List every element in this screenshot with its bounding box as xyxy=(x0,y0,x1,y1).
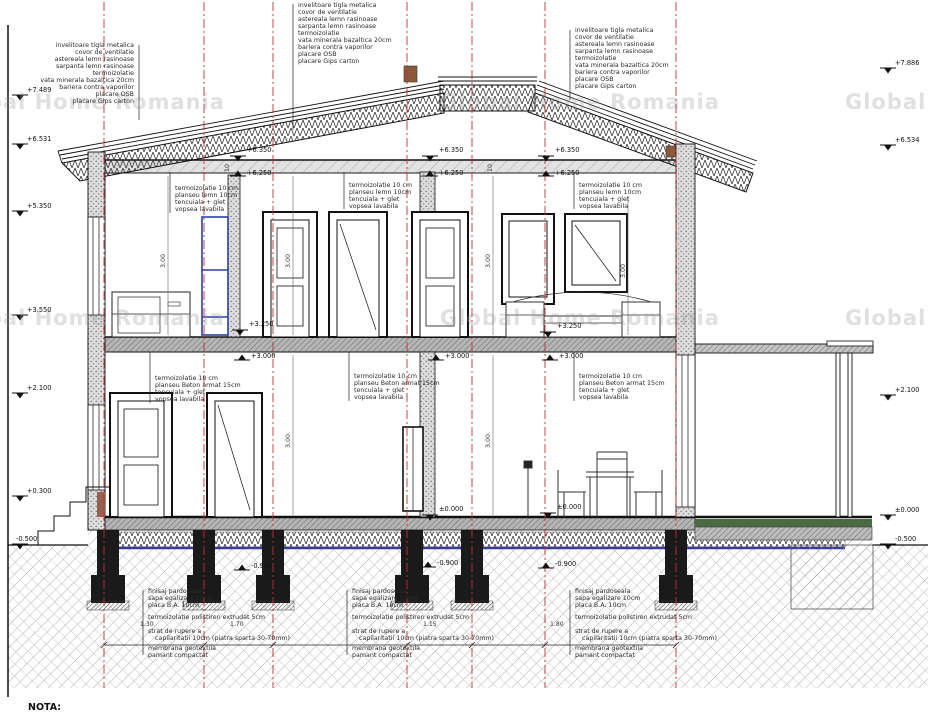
annotation-line: invelitoare tigla metalica xyxy=(575,27,669,34)
annotation-line: termoizolatie 10 cm xyxy=(354,373,440,380)
foundation-layers-right: finisaj pardosealasapa egalizare 10cmpla… xyxy=(575,588,717,659)
elevation-label: +3.000 xyxy=(559,352,583,360)
first-floor-slab xyxy=(88,337,695,352)
elevation-label: +6.350 xyxy=(555,146,579,154)
elevation-label: +3.000 xyxy=(251,352,275,360)
annotation-line: sapa egalizare 10cm xyxy=(575,595,717,602)
elevation-label: +6.250 xyxy=(439,169,463,177)
annotation-line: placa B.A. 10cm xyxy=(148,602,290,609)
dim-room-height: 3.00 xyxy=(620,264,627,278)
dim-room-height: 3.00 xyxy=(160,254,167,268)
porch-canopy xyxy=(695,341,873,517)
dim-room-height: 3.00 xyxy=(485,254,492,268)
slab-layers-left: termoizolatie 10 cmplanseu Beton armat 1… xyxy=(155,375,241,403)
annotation-line: invelitoare tigla metalica xyxy=(14,42,134,49)
annotation-line: vopsea lavabila xyxy=(579,394,665,401)
elevation-label: ±0.000 xyxy=(439,505,463,513)
ridge-beam xyxy=(404,66,417,82)
annotation-line: covor de ventilatie xyxy=(14,49,134,56)
annotation-line: capilaritatii 10cm (piatra sparta 30-70m… xyxy=(148,635,290,642)
annotation-line: planseu lemn 10cm xyxy=(349,189,412,196)
dim-foundation-segment: 1.70 xyxy=(230,621,244,628)
attic-floor-layers-right: termoizolatie 10 cmplanseu lemn 10cmtenc… xyxy=(579,182,642,210)
elevation-label: +6.531 xyxy=(27,135,51,143)
annotation-line: pamant compactat xyxy=(148,652,290,659)
annotation-line: termoizolatie polistiren extrudat 5cm xyxy=(575,614,717,621)
elevation-label: -0.500 xyxy=(16,535,37,543)
watermark: Global Home Romania xyxy=(440,90,720,114)
right-wall-door xyxy=(676,355,695,507)
annotation-line: covor de ventilatie xyxy=(575,34,669,41)
foundation-layers-left: finisaj pardosealasapa egalizare 10cmpla… xyxy=(148,588,290,659)
annotation-line: vata minerala bazaltica 20cm xyxy=(575,62,669,69)
elevation-label: +2.100 xyxy=(895,386,919,394)
attic-floor xyxy=(105,160,695,173)
elevation-label: ±0.000 xyxy=(895,506,919,514)
annotation-line: vopsea lavabila xyxy=(354,394,440,401)
elevation-label: +7.886 xyxy=(895,59,919,67)
annotation-line: planseu lemn 10cm xyxy=(175,192,238,199)
elevation-label: +3.000 xyxy=(445,352,469,360)
elevation-label: +3.250 xyxy=(249,320,273,328)
elevation-label: +6.534 xyxy=(895,136,919,144)
annotation-line: placa B.A. 10cm xyxy=(352,602,494,609)
annotation-line: sarpanta lemn rasinoase xyxy=(575,48,669,55)
annotation-line: strat de rupere a xyxy=(148,628,290,635)
dim-foundation-segment: 1.80 xyxy=(550,621,564,628)
dim-slab-thickness: 10 xyxy=(224,164,231,172)
annotation-line: tencuiala + glet xyxy=(354,387,440,394)
ground-floor-openings xyxy=(110,393,423,517)
annotation-line: planseu Beton armat 15cm xyxy=(579,380,665,387)
elevation-label: -0.900 xyxy=(251,562,272,570)
annotation-line: membrana geotextila xyxy=(148,645,290,652)
annotation-line: sarpanta lemn rasinoase xyxy=(14,63,134,70)
annotation-line: sapa egalizare 10cm xyxy=(148,595,290,602)
annotation-line: vopsea lavabila xyxy=(155,396,241,403)
annotation-line: finisaj pardoseala xyxy=(575,588,717,595)
annotation-line: tencuiala + glet xyxy=(175,199,238,206)
dim-foundation-segment: 1.30 xyxy=(140,621,154,628)
annotation-line: termoizolatie 10 cm xyxy=(175,185,238,192)
elevation-label: +3.250 xyxy=(557,322,581,330)
annotation-line: membrana geotextila xyxy=(352,645,494,652)
porch-column xyxy=(848,353,852,517)
annotation-line: sapa egalizare 10cm xyxy=(352,595,494,602)
annotation-line: bariera contra vaporilor xyxy=(575,69,669,76)
annotation-line: finisaj pardoseala xyxy=(352,588,494,595)
terrace-finish xyxy=(695,519,872,527)
annotation-line: pamant compactat xyxy=(575,652,717,659)
annotation-line: termoizolatie 10 cm xyxy=(349,182,412,189)
annotation-line: termoizolatie polistiren extrudat 5cm xyxy=(148,614,290,621)
annotation-line: covor de ventilatie xyxy=(298,9,392,16)
dim-room-height: 3.00 xyxy=(285,254,292,268)
annotation-line: termoizolatie 10 cm xyxy=(579,182,642,189)
annotation-line: termoizolatie xyxy=(298,30,392,37)
annotation-line: pamant compactat xyxy=(352,652,494,659)
annotation-line: termoizolatie xyxy=(14,70,134,77)
annotation-line: tencuiala + glet xyxy=(155,389,241,396)
elevation-label: +6.250 xyxy=(555,169,579,177)
annotation-line: placare OSB xyxy=(575,76,669,83)
annotation-line: capilaritatii 10cm (piatra sparta 30-70m… xyxy=(575,635,717,642)
annotation-line: planseu lemn 10cm xyxy=(579,189,642,196)
annotation-line: tencuiala + glet xyxy=(349,196,412,203)
annotation-line: placare OSB xyxy=(298,51,392,58)
roof-layers-right: invelitoare tigla metalicacovor de venti… xyxy=(575,27,669,90)
annotation-line: bariera contra vaporilor xyxy=(298,44,392,51)
left-wall-window-lower xyxy=(88,405,105,490)
annotation-line: termoizolatie xyxy=(575,55,669,62)
annotation-line: astereala lemn rasinoase xyxy=(575,41,669,48)
annotation-line: vata minerala bazaltica 20cm xyxy=(298,37,392,44)
elevation-label: +6.350 xyxy=(439,146,463,154)
annotation-line: capilaritatii 10cm (piatra sparta 30-70m… xyxy=(352,635,494,642)
elevation-label: +5.350 xyxy=(27,202,51,210)
drawing-canvas: Global Home Romania Global Home Romania … xyxy=(0,0,935,720)
annotation-line: termoizolatie polistiren extrudat 5cm xyxy=(352,614,494,621)
annotation-line: sarpanta lemn rasinoase xyxy=(298,23,392,30)
dim-foundation-segment: 1.15 xyxy=(423,621,437,628)
elevation-label: ±0.000 xyxy=(557,503,581,511)
watermark: Global Home Romania xyxy=(845,90,935,114)
elevation-label: -0.900 xyxy=(437,559,458,567)
dim-slab-thickness: 10 xyxy=(487,164,494,172)
slab-layers-middle: termoizolatie 10 cmplanseu Beton armat 1… xyxy=(354,373,440,401)
annotation-line: astereala lemn rasinoase xyxy=(14,56,134,63)
attic-floor-layers-middle: termoizolatie 10 cmplanseu lemn 10cmtenc… xyxy=(349,182,412,210)
elevation-label: +0.300 xyxy=(27,487,51,495)
annotation-line: placare Gips carton xyxy=(14,98,134,105)
watermark: Global Home Romania xyxy=(845,306,935,330)
elevation-label: +3.550 xyxy=(27,306,51,314)
annotation-line: tencuiala + glet xyxy=(579,196,642,203)
slab-layers-right: termoizolatie 10 cmplanseu Beton armat 1… xyxy=(579,373,665,401)
elevation-label: +6.250 xyxy=(247,169,271,177)
annotation-line: placare Gips carton xyxy=(298,58,392,65)
annotation-line: termoizolatie 10 cm xyxy=(155,375,241,382)
dim-room-height: 3.00 xyxy=(285,434,292,448)
attic-floor-layers-left: termoizolatie 10 cmplanseu lemn 10cmtenc… xyxy=(175,185,238,213)
elevation-label: -0.900 xyxy=(555,560,576,568)
elevation-label: +7.489 xyxy=(27,86,51,94)
annotation-line: finisaj pardoseala xyxy=(148,588,290,595)
dim-room-height: 3.00 xyxy=(485,434,492,448)
annotation-line: strat de rupere a xyxy=(352,628,494,635)
note-label: NOTA: xyxy=(28,702,61,713)
annotation-line: astereala lemn rasinoase xyxy=(298,16,392,23)
annotation-line: vata minerala bazaltica 20cm xyxy=(14,77,134,84)
annotation-line: termoizolatie 10 cm xyxy=(579,373,665,380)
annotation-line: membrana geotextila xyxy=(575,645,717,652)
elevation-label: +2.100 xyxy=(27,384,51,392)
annotation-line: vopsea lavabila xyxy=(175,206,238,213)
annotation-line: invelitoare tigla metalica xyxy=(298,2,392,9)
roof-layers-left: invelitoare tigla metalicacovor de venti… xyxy=(14,42,134,105)
porch-column xyxy=(836,353,840,517)
annotation-line: planseu Beton armat 15cm xyxy=(354,380,440,387)
annotation-line: placare Gips carton xyxy=(575,83,669,90)
annotation-line: strat de rupere a xyxy=(575,628,717,635)
annotation-line: tencuiala + glet xyxy=(579,387,665,394)
roof-layers-middle: invelitoare tigla metalicacovor de venti… xyxy=(298,2,392,65)
annotation-line: planseu Beton armat 15cm xyxy=(155,382,241,389)
elevation-label: +6.350 xyxy=(247,146,271,154)
porch-foundation xyxy=(791,545,873,609)
annotation-line: vopsea lavabila xyxy=(579,203,642,210)
left-wall-window-upper xyxy=(88,217,105,315)
annotation-line: vopsea lavabila xyxy=(349,203,412,210)
annotation-line: placa B.A. 10cm xyxy=(575,602,717,609)
elevation-label: -0.500 xyxy=(895,535,916,543)
